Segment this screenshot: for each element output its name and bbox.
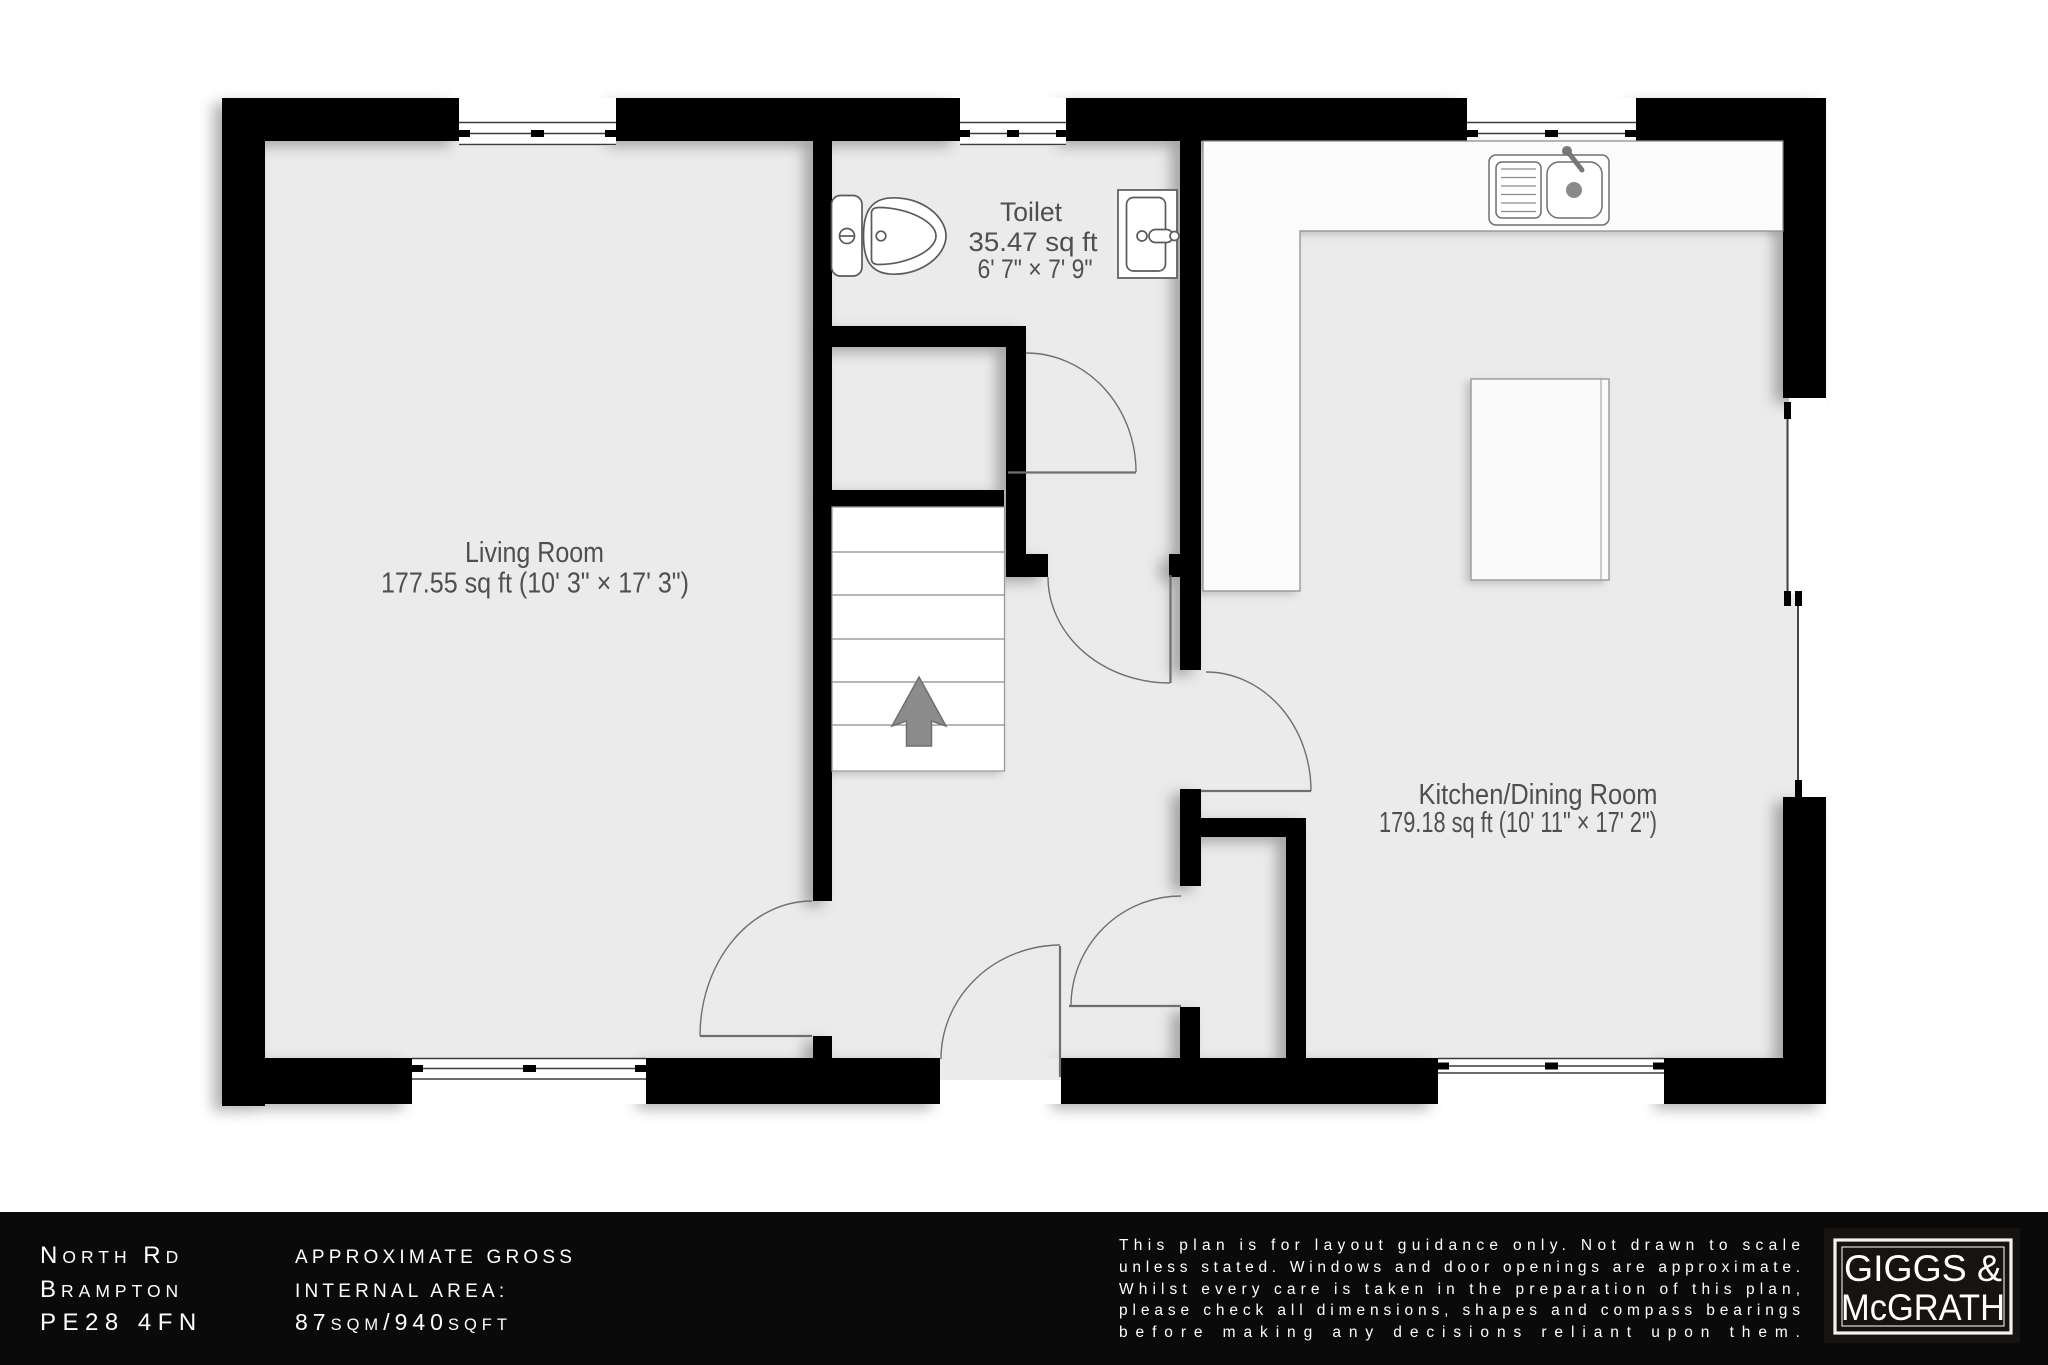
svg-text:NORTH RD: NORTH RD xyxy=(40,1242,183,1269)
svg-text:BRAMPTON: BRAMPTON xyxy=(40,1276,183,1303)
svg-text:35.47 sq ft: 35.47 sq ft xyxy=(969,227,1099,257)
svg-text:177.55 sq ft (10' 3" × 17' 3"): 177.55 sq ft (10' 3" × 17' 3") xyxy=(381,568,689,600)
svg-text:6' 7" × 7' 9": 6' 7" × 7' 9" xyxy=(978,254,1093,284)
svg-text:APPROXIMATE GROSS: APPROXIMATE GROSS xyxy=(295,1247,576,1268)
svg-text:GIGGS &: GIGGS & xyxy=(1844,1248,2002,1289)
svg-text:McGRATH: McGRATH xyxy=(1841,1287,2005,1328)
svg-text:Toilet: Toilet xyxy=(1000,197,1062,227)
svg-text:INTERNAL AREA:: INTERNAL AREA: xyxy=(295,1281,508,1302)
svg-text:179.18 sq ft (10' 11" × 17' 2": 179.18 sq ft (10' 11" × 17' 2") xyxy=(1379,807,1657,839)
svg-text:Living Room: Living Room xyxy=(465,537,604,569)
svg-text:PE28 4FN: PE28 4FN xyxy=(40,1309,203,1336)
